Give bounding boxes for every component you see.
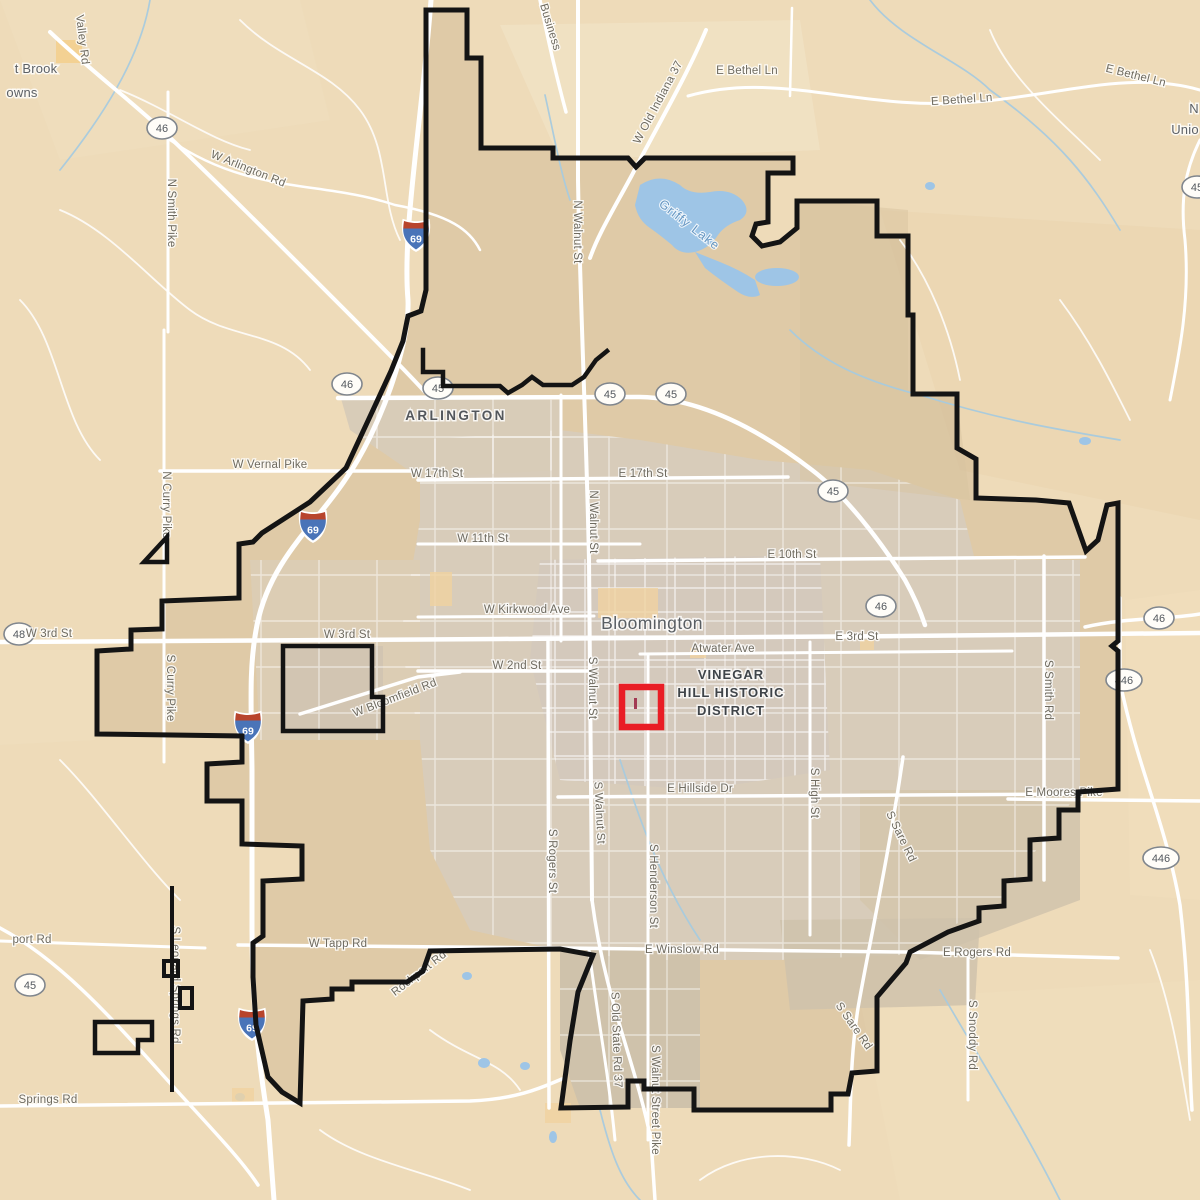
map-canvas[interactable]: 464645454545464644644648454569696969 t B… [0,0,1200,1200]
road-label-e-bethel-ln-1: E Bethel Ln [716,65,778,77]
svg-text:48: 48 [13,629,25,641]
route-shield-45: 45 [818,480,848,502]
road-label-w-11th-st: W 11th St [457,533,509,545]
svg-text:69: 69 [410,234,422,246]
route-shield-46: 46 [147,117,177,139]
district-label-line2: HILL HISTORIC [677,685,784,700]
road-label-s-high-st: S High St [808,768,820,819]
road-label-clipped-airport-rd: port Rd [12,934,51,946]
road-label-n-walnut-st-1: N Walnut St [571,200,583,264]
road-label-s-walnut-street-pike: S Walnut Street Pike [649,1045,661,1155]
road-label-n-smith-pike: N Smith Pike [165,179,177,248]
road-label-s-smith-rd: S Smith Rd [1042,660,1054,720]
road-label-e-10th-st: E 10th St [767,549,817,561]
svg-text:45: 45 [604,389,616,401]
route-shield-446: 446 [1143,847,1179,869]
route-shield-46: 46 [332,373,362,395]
road-label-e-17th-st: E 17th St [618,468,668,480]
route-shield-46: 46 [1144,607,1174,629]
road-label-clipped-springs-rd: Springs Rd [19,1094,78,1106]
town-label-clipped-owns: owns [6,85,37,100]
svg-text:45: 45 [24,980,36,992]
svg-text:46: 46 [1153,613,1165,625]
road-label-w-3rd-st-2: W 3rd St [324,629,371,641]
road-label-s-rogers-st: S Rogers St [546,829,558,894]
road-label-s-walnut-st-1: S Walnut St [586,657,598,720]
road-label-e-3rd-st: E 3rd St [835,631,879,643]
town-label-clipped-unionville: Unio [1171,122,1199,137]
route-shield-45: 45 [595,383,625,405]
road-label-n-walnut-st-2: N Walnut St [587,490,599,554]
road-label-atwater-ave: Atwater Ave [691,643,754,655]
road-label-w-17th-st: W 17th St [411,468,464,480]
svg-text:45: 45 [827,486,839,498]
road-label-s-snoddy-rd: S Snoddy Rd [966,1000,978,1070]
district-label-line3: DISTRICT [697,703,765,718]
road-label-w-3rd-st-1: W 3rd St [26,628,73,640]
road-label-e-winslow-rd: E Winslow Rd [645,944,719,956]
town-label-clipped-n: N [1189,101,1199,116]
svg-text:69: 69 [307,525,319,537]
road-label-s-henderson-st: S Henderson St [647,844,659,929]
road-label-w-tapp-rd: W Tapp Rd [309,938,367,950]
route-shield-45: 45 [656,383,686,405]
svg-text:46: 46 [875,601,887,613]
svg-text:45: 45 [665,389,677,401]
road-label-n-curry-pike: N Curry Pike [160,471,172,539]
city-label-bloomington: Bloomington [601,613,703,633]
route-shield-46: 46 [866,595,896,617]
town-label-clipped-brook: t Brook [15,61,58,76]
district-label-line1: VINEGAR [698,667,764,682]
svg-text:45: 45 [1191,182,1200,194]
route-shield-45: 45 [15,974,45,996]
road-label-s-curry-pike: S Curry Pike [164,655,176,722]
road-label-w-vernal-pike: W Vernal Pike [233,459,308,471]
road-label-e-hillside-dr: E Hillside Dr [667,783,733,795]
road-label-w-kirkwood-ave: W Kirkwood Ave [484,604,570,616]
map-graphic: 464645454545464644644648454569696969 t B… [0,0,1200,1200]
area-label-arlington: ARLINGTON [405,408,507,423]
svg-text:446: 446 [1152,853,1170,865]
svg-text:46: 46 [156,123,168,135]
road-label-w-2nd-st: W 2nd St [493,660,543,672]
road-label-e-rogers-rd: E Rogers Rd [943,947,1011,959]
svg-text:46: 46 [341,379,353,391]
route-shield-446: 446 [1106,669,1142,691]
